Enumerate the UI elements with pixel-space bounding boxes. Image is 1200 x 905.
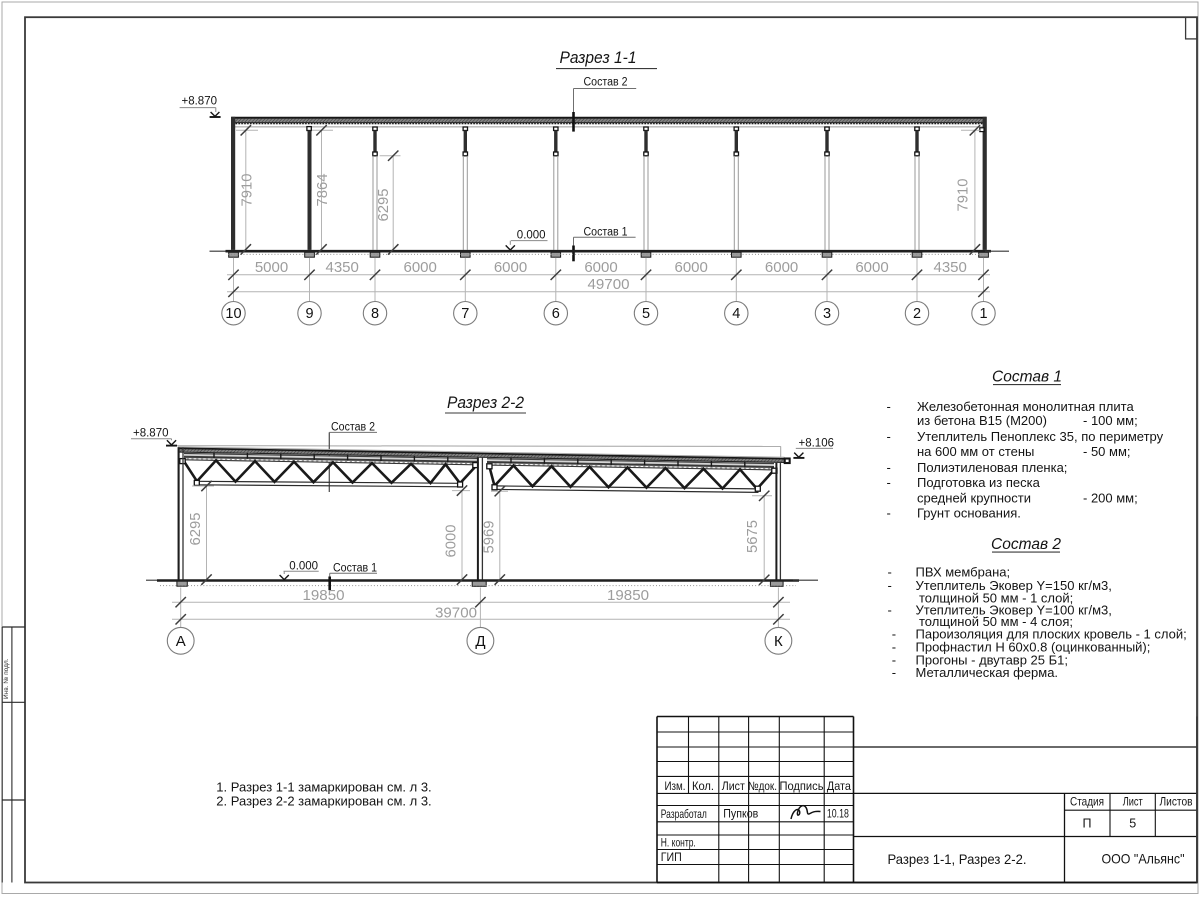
svg-text:6000: 6000 [584,259,617,276]
svg-text:1. Разрез 1-1 замаркирован см.: 1. Разрез 1-1 замаркирован см. л 3. [216,780,431,795]
svg-text:Состав 2: Состав 2 [991,536,1061,553]
svg-text:Подготовка из песка: Подготовка из песка [917,475,1041,490]
svg-text:Кол.: Кол. [692,779,714,793]
svg-text:К: К [774,633,783,650]
svg-text:- 100 мм;: - 100 мм; [1083,413,1138,428]
svg-text:6000: 6000 [675,259,708,276]
svg-text:1: 1 [979,306,987,322]
svg-text:-: - [887,505,891,520]
svg-text:Инв. № подл.: Инв. № подл. [3,658,10,699]
svg-text:39700: 39700 [435,605,477,622]
svg-text:П: П [1083,817,1092,831]
svg-text:5000: 5000 [255,259,288,276]
svg-text:Н. контр.: Н. контр. [661,838,696,850]
svg-text:Листов: Листов [1160,795,1193,809]
svg-text:Состав 1: Состав 1 [992,369,1062,386]
svg-text:6295: 6295 [375,189,392,222]
svg-text:Пупков: Пупков [723,806,758,820]
svg-text:Изм.: Изм. [665,779,686,793]
svg-text:4350: 4350 [326,259,359,276]
svg-text:Железобетонная монолитная пли: Железобетонная монолитная плита [917,399,1134,414]
svg-text:Состав 2: Состав 2 [331,421,375,433]
svg-text:-: - [887,429,891,444]
svg-text:Разрез 1-1: Разрез 1-1 [560,49,637,67]
svg-text:9: 9 [305,306,313,322]
svg-text:6000: 6000 [765,259,798,276]
svg-text:6: 6 [552,306,560,322]
svg-text:-: - [887,460,891,475]
svg-text:Металлическая ферма.: Металлическая ферма. [916,665,1059,680]
svg-text:Грунт основания.: Грунт основания. [917,505,1021,520]
svg-text:Разрез 2-2: Разрез 2-2 [447,394,524,412]
svg-text:4350: 4350 [934,259,967,276]
svg-text:3: 3 [823,306,831,322]
svg-text:6000: 6000 [855,259,888,276]
svg-text:Подпись: Подпись [780,779,824,793]
svg-text:- 200 мм;: - 200 мм; [1083,490,1138,505]
svg-text:средней крупности: средней крупности [917,490,1031,505]
svg-text:10: 10 [225,306,241,322]
svg-text:из бетона В15 (М200): из бетона В15 (М200) [917,413,1047,428]
svg-text:49700: 49700 [588,276,630,293]
svg-text:2. Разрез 2-2 замаркирован см.: 2. Разрез 2-2 замаркирован см. л 3. [216,794,431,809]
svg-text:на 600 мм от стены: на 600 мм от стены [917,444,1034,459]
svg-text:7864: 7864 [314,174,331,207]
svg-text:7: 7 [461,306,469,322]
svg-text:5675: 5675 [744,520,761,553]
svg-text:А: А [176,633,186,650]
svg-text:Лист: Лист [722,779,745,793]
svg-text:6000: 6000 [443,525,460,558]
svg-text:0.000: 0.000 [289,560,318,572]
svg-text:-: - [888,578,892,593]
svg-text:4: 4 [732,306,740,322]
svg-text:10.18: 10.18 [827,808,849,820]
svg-text:+8.870: +8.870 [133,428,169,440]
svg-text:-: - [888,603,892,618]
svg-text:7910: 7910 [955,179,972,212]
svg-text:6000: 6000 [404,259,437,276]
svg-text:Лист: Лист [1123,795,1143,809]
svg-text:19850: 19850 [303,587,345,604]
svg-text:ГИП: ГИП [661,852,682,864]
svg-text:Утеплитель Пеноплекс 35, по пе: Утеплитель Пеноплекс 35, по периметру [917,429,1164,444]
svg-text:5: 5 [1129,817,1136,831]
svg-text:19850: 19850 [607,587,649,604]
svg-text:-: - [887,399,891,414]
svg-text:№док.: №док. [748,779,777,793]
svg-text:8: 8 [371,306,379,322]
svg-text:0.000: 0.000 [517,230,546,242]
svg-text:- 50 мм;: - 50 мм; [1083,444,1131,459]
svg-text:5969: 5969 [481,521,498,554]
svg-text:Состав 2: Состав 2 [584,76,628,88]
svg-text:+8.870: +8.870 [182,96,218,108]
svg-text:-: - [892,665,896,680]
svg-text:+8.106: +8.106 [799,437,835,449]
svg-text:-: - [887,475,891,490]
svg-text:7910: 7910 [239,174,256,207]
svg-text:Стадия: Стадия [1070,795,1104,809]
svg-text:Разрез 1-1, Разрез 2-2.: Разрез 1-1, Разрез 2-2. [888,851,1027,867]
svg-text:Дата: Дата [827,779,851,793]
svg-text:Разработал: Разработал [661,807,707,821]
svg-text:Д: Д [475,633,485,650]
svg-text:6000: 6000 [494,259,527,276]
svg-text:ООО "Альянс": ООО "Альянс" [1102,851,1185,867]
svg-text:Полиэтиленовая пленка;: Полиэтиленовая пленка; [917,460,1067,475]
svg-text:6295: 6295 [187,513,204,546]
svg-text:5: 5 [642,306,650,322]
svg-text:2: 2 [913,306,921,322]
